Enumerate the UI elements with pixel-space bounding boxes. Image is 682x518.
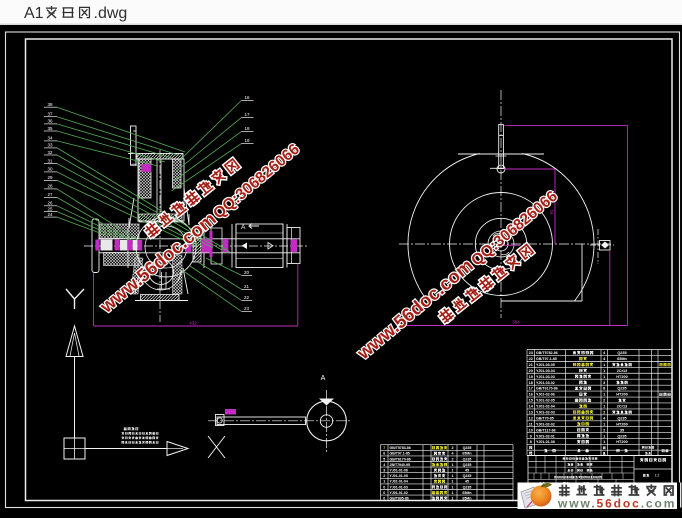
svg-text:Q235: Q235	[463, 446, 472, 450]
svg-text:27: 27	[47, 192, 53, 197]
svg-text:YJ01-02-04: YJ01-02-04	[536, 405, 555, 409]
svg-text:2: 2	[383, 474, 385, 478]
svg-text:21: 21	[529, 363, 533, 367]
svg-text:Q235: Q235	[617, 434, 626, 438]
svg-text:YJ01-01-05: YJ01-01-05	[390, 474, 408, 478]
svg-text:YJ01-03-02: YJ01-03-02	[536, 381, 555, 385]
svg-text:2Cr13: 2Cr13	[617, 405, 628, 409]
svg-text:21: 21	[244, 284, 250, 289]
svg-text:45: 45	[465, 480, 469, 484]
svg-text:A1: A1	[24, 5, 44, 22]
svg-text:65Mn: 65Mn	[462, 452, 471, 456]
svg-text:2Cr13: 2Cr13	[617, 369, 628, 373]
svg-text:HT200: HT200	[616, 393, 627, 397]
svg-text:0: 0	[383, 485, 385, 489]
svg-text:2: 2	[603, 399, 605, 403]
svg-text:12: 12	[529, 416, 533, 420]
svg-text:36: 36	[47, 119, 53, 124]
svg-text:GB/T97.1-85: GB/T97.1-85	[536, 357, 557, 361]
svg-text:18: 18	[244, 126, 250, 131]
svg-text:YJ01-01-04: YJ01-01-04	[390, 480, 408, 484]
svg-text:24: 24	[47, 212, 53, 217]
svg-text:YJ01-03-03: YJ01-03-03	[536, 375, 555, 379]
svg-text:YJ01-02-06: YJ01-02-06	[536, 393, 555, 397]
svg-text:19: 19	[529, 375, 533, 379]
svg-text:6: 6	[383, 452, 385, 456]
svg-text:1: 1	[603, 422, 605, 426]
svg-text:Q235: Q235	[463, 463, 472, 467]
svg-text:16: 16	[529, 393, 533, 397]
svg-text:GB/T895-86: GB/T895-86	[390, 497, 409, 501]
svg-text:8: 8	[603, 387, 605, 391]
svg-text:1: 1	[452, 463, 454, 467]
svg-text:1: 1	[452, 491, 454, 495]
svg-text:4: 4	[383, 463, 385, 467]
svg-text:3: 3	[603, 381, 605, 385]
svg-text:2: 2	[603, 411, 605, 415]
svg-text:1: 1	[452, 485, 454, 489]
svg-text:45: 45	[465, 469, 469, 473]
svg-text:2: 2	[603, 428, 605, 432]
svg-text:38: 38	[47, 102, 53, 107]
svg-text:0: 0	[383, 491, 385, 495]
svg-text:1: 1	[452, 480, 454, 484]
svg-text:19: 19	[244, 138, 250, 143]
svg-text:GB/T5783-86: GB/T5783-86	[390, 446, 411, 450]
svg-text:1: 1	[603, 393, 605, 397]
svg-text:1: 1	[603, 363, 605, 367]
svg-text:8: 8	[530, 440, 532, 444]
svg-text:9: 9	[530, 434, 532, 438]
svg-text:5: 5	[383, 457, 385, 461]
svg-text:15: 15	[529, 399, 533, 403]
svg-text:33: 33	[47, 143, 53, 148]
svg-text:1: 1	[383, 480, 385, 484]
svg-text:GB/T70-85: GB/T70-85	[536, 416, 554, 420]
svg-text:1: 1	[452, 497, 454, 501]
svg-text:A: A	[241, 224, 246, 231]
svg-text:1:2: 1:2	[655, 474, 660, 478]
svg-text:20: 20	[529, 369, 533, 373]
svg-text:18: 18	[529, 381, 533, 385]
svg-text:1: 1	[603, 434, 605, 438]
svg-text:HT200: HT200	[616, 422, 627, 426]
svg-text:65Mn: 65Mn	[462, 491, 471, 495]
svg-text:YJ01-03-05: YJ01-03-05	[536, 363, 555, 367]
svg-text:65Mn: 65Mn	[462, 497, 471, 501]
svg-text:26: 26	[47, 201, 53, 206]
svg-text:1: 1	[603, 405, 605, 409]
svg-text:1: 1	[452, 469, 454, 473]
svg-text:2: 2	[452, 457, 454, 461]
svg-text:JB/T7940-95: JB/T7940-95	[390, 463, 410, 467]
svg-text:4: 4	[452, 452, 454, 456]
svg-text:GB/T97.1-85: GB/T97.1-85	[390, 452, 410, 456]
svg-text:.dwg: .dwg	[94, 5, 128, 22]
svg-text:34: 34	[47, 136, 53, 141]
svg-text:28: 28	[47, 184, 53, 189]
svg-text:32: 32	[47, 150, 53, 155]
svg-text:GB/T6170-86: GB/T6170-86	[536, 387, 558, 391]
svg-text:YJ01-03-04: YJ01-03-04	[536, 369, 555, 373]
svg-text:Q235: Q235	[463, 457, 472, 461]
svg-text:1: 1	[603, 440, 605, 444]
svg-text:YJ01-02-02: YJ01-02-02	[536, 422, 555, 426]
svg-text:432: 432	[189, 321, 197, 326]
svg-text:1: 1	[452, 474, 454, 478]
svg-text:Q235: Q235	[617, 416, 626, 420]
svg-text:A: A	[321, 375, 326, 382]
svg-text:M36: M36	[130, 163, 137, 167]
svg-text:Q235: Q235	[617, 387, 626, 391]
svg-text:YJ01-01-06: YJ01-01-06	[390, 469, 408, 473]
svg-text:13: 13	[529, 411, 533, 415]
svg-text:GB/T5782-86: GB/T5782-86	[536, 351, 558, 355]
svg-text:35: 35	[47, 126, 53, 131]
svg-text:YJ01-02-01: YJ01-02-01	[536, 434, 555, 438]
svg-text:HT200: HT200	[616, 375, 627, 379]
svg-text:Q235: Q235	[463, 474, 472, 478]
svg-text:17: 17	[529, 387, 533, 391]
svg-text:2: 2	[452, 446, 454, 450]
svg-text:GB/T6170-86: GB/T6170-86	[390, 457, 411, 461]
svg-text:3: 3	[383, 469, 385, 473]
svg-text:10: 10	[529, 428, 533, 432]
svg-text:35: 35	[620, 428, 624, 432]
svg-text:11: 11	[529, 422, 533, 426]
svg-text:17: 17	[244, 112, 250, 117]
svg-text:23: 23	[244, 306, 250, 311]
svg-text:7: 7	[383, 446, 385, 450]
svg-text:YJ01-01-02: YJ01-01-02	[390, 491, 408, 495]
svg-text:65Mn: 65Mn	[617, 357, 627, 361]
svg-text:20: 20	[244, 270, 250, 275]
svg-text:HT200: HT200	[616, 440, 627, 444]
svg-text:0: 0	[383, 497, 385, 501]
svg-text:1: 1	[603, 369, 605, 373]
svg-text:22: 22	[244, 295, 250, 300]
svg-text:37: 37	[47, 112, 53, 117]
svg-text:YJ01-02-05: YJ01-02-05	[536, 399, 555, 403]
svg-text:GB/T117-86: GB/T117-86	[536, 428, 556, 432]
svg-text:Q235: Q235	[617, 351, 626, 355]
svg-text:30: 30	[47, 167, 53, 172]
svg-text:16: 16	[244, 95, 250, 100]
svg-text:22: 22	[529, 357, 533, 361]
svg-text:Q235: Q235	[463, 485, 472, 489]
svg-text:YJ01-01-08: YJ01-01-08	[536, 440, 555, 444]
svg-text:25: 25	[47, 206, 53, 211]
svg-text:YJ01-02-03: YJ01-02-03	[536, 411, 555, 415]
svg-text:www.56doc.com: www.56doc.com	[557, 497, 676, 511]
svg-text:29: 29	[47, 175, 53, 180]
svg-text:YJ01-01-03: YJ01-01-03	[390, 485, 408, 489]
svg-text:31: 31	[47, 158, 53, 163]
svg-text:354: 354	[512, 320, 520, 325]
svg-text:1: 1	[603, 375, 605, 379]
svg-text:23: 23	[529, 351, 533, 355]
